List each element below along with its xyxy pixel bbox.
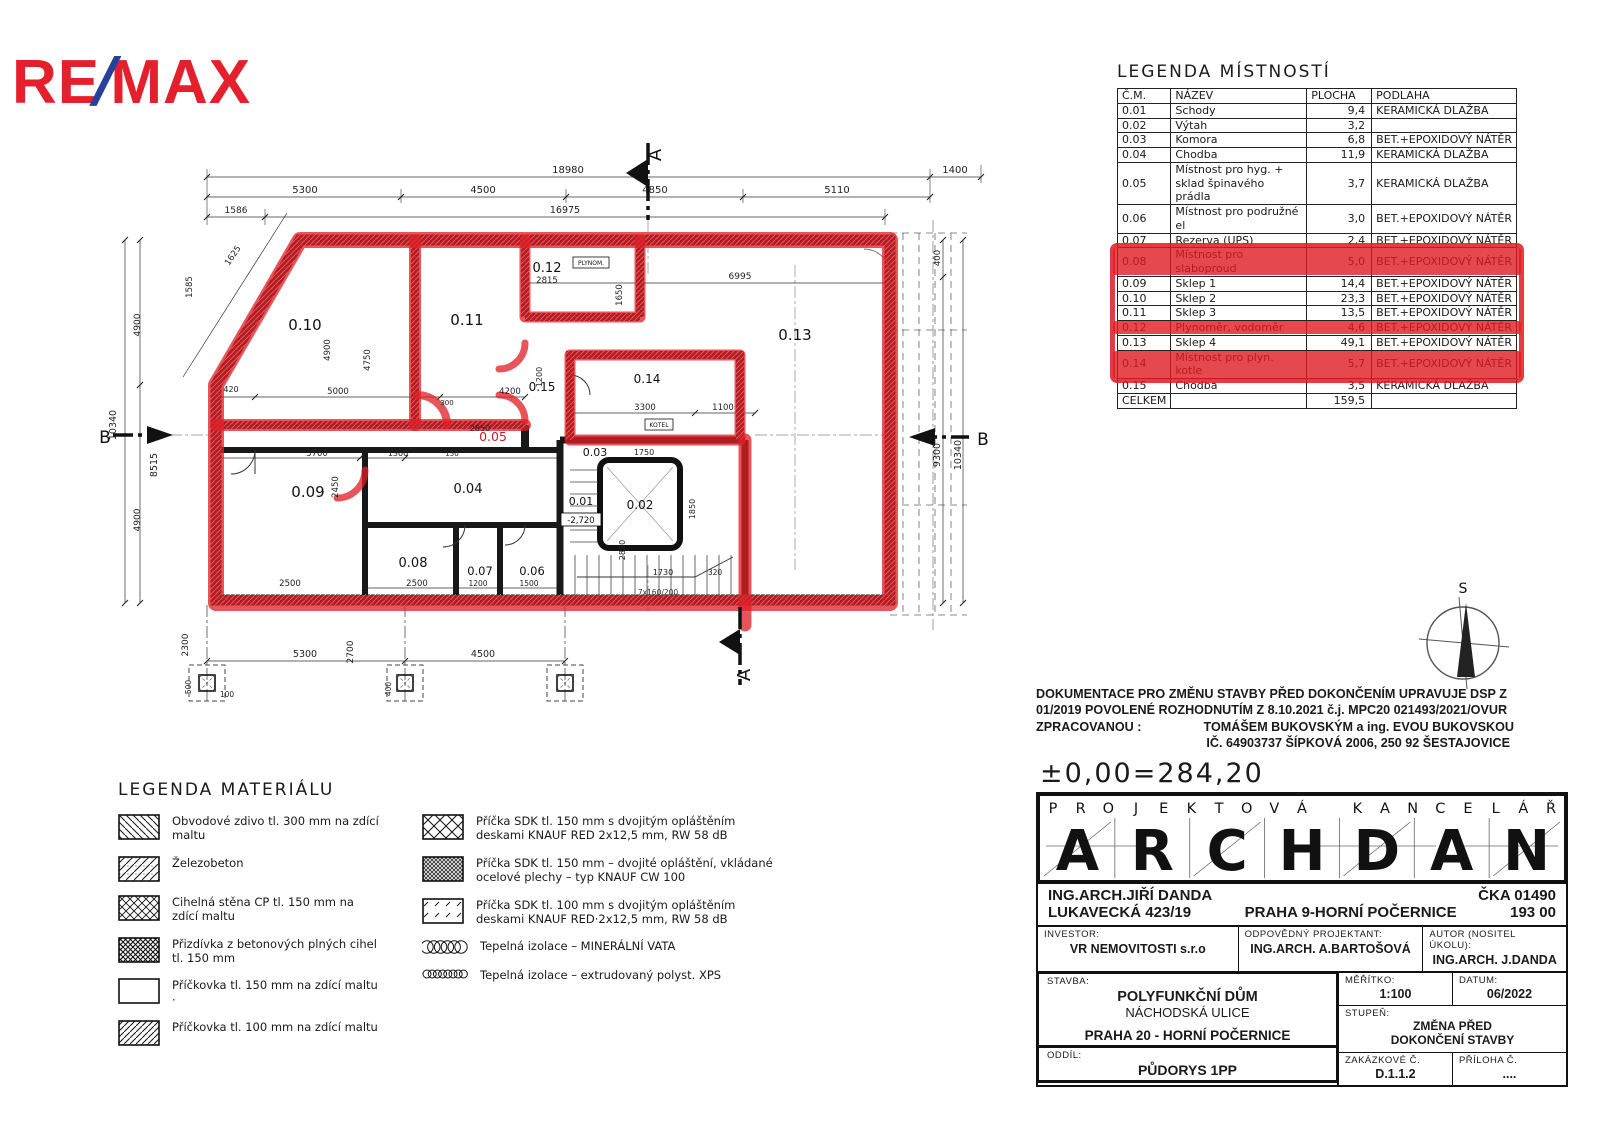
scale-cell: MĚŘÍTKO: 1:100 bbox=[1339, 973, 1453, 1005]
annex-value: .... bbox=[1459, 1067, 1560, 1081]
investor-cell: INVESTOR: VR NEMOVITOSTI s.r.o bbox=[1038, 927, 1239, 971]
material-legend-label: Obvodové zdivo tl. 300 mm na zdící maltu bbox=[172, 814, 380, 843]
title-block: PROJEKTOVÁKANCELÁŘARCHDAN ING.ARCH.JIŘÍ … bbox=[1036, 792, 1568, 1087]
stage-cell: STUPEŇ: ZMĚNA PŘED DOKONČENÍ STAVBY bbox=[1339, 1006, 1566, 1052]
project-name: POLYFUNKČNÍ DŮM bbox=[1047, 989, 1328, 1005]
date-value: 06/2022 bbox=[1459, 987, 1560, 1001]
column-header: Č.M. bbox=[1118, 89, 1171, 104]
material-legend-label: Přizdívka z betonových plných cihel tl. … bbox=[172, 937, 380, 966]
logo-small-letter: A bbox=[1380, 801, 1390, 817]
table-cell: Sklep 3 bbox=[1171, 306, 1307, 321]
remax-logo: RE/MAX bbox=[12, 52, 251, 114]
dimension-label: 1650 bbox=[615, 284, 625, 306]
logo-big-letter: A bbox=[1430, 819, 1474, 880]
logo-small-letter: O bbox=[1103, 801, 1114, 817]
insulation-swatch-icon bbox=[422, 968, 468, 980]
table-cell: BET.+EPOXIDOVÝ NÁTĚR bbox=[1372, 306, 1517, 321]
dimension-label: 4500 bbox=[470, 185, 495, 196]
material-swatch-icon bbox=[118, 856, 160, 882]
table-row: 0.15Chodba3,5KERAMICKÁ DLAŽBA bbox=[1118, 379, 1517, 394]
dimension-label: 2850 bbox=[618, 540, 627, 560]
dimension-label: 5000 bbox=[327, 387, 349, 397]
logo-big-letter: R bbox=[1131, 819, 1174, 880]
table-cell: Místnost pro plyn. kotle bbox=[1171, 350, 1307, 379]
remax-logo-max: MAX bbox=[110, 48, 251, 117]
room-number-label: 0.03 bbox=[583, 446, 608, 459]
logo-small-letter: L bbox=[1492, 801, 1500, 817]
dimension-label: 4750 bbox=[363, 349, 373, 371]
table-row: 0.09Sklep 114,4BET.+EPOXIDOVÝ NÁTĚR bbox=[1118, 276, 1517, 291]
material-legend-title: LEGENDA MATERIÁLU bbox=[118, 780, 998, 800]
room-legend-table: Č.M.NÁZEVPLOCHAPODLAHA0.01Schody9,4KERAM… bbox=[1117, 88, 1517, 409]
logo-big-letter: N bbox=[1503, 819, 1550, 880]
dimension-label: 18980 bbox=[552, 165, 584, 176]
material-legend-item: Příčka SDK tl. 150 mm s dvojitým opláště… bbox=[422, 814, 774, 843]
logo-small-letter: T bbox=[1214, 801, 1224, 817]
material-legend-label: Příčkovka tl. 100 mm na zdící maltu bbox=[172, 1020, 378, 1034]
table-cell: 0.12 bbox=[1118, 321, 1171, 336]
material-swatch-icon bbox=[118, 937, 160, 963]
dimension-label: 8515 bbox=[149, 453, 160, 477]
table-cell: 0.05 bbox=[1118, 162, 1171, 204]
table-cell: 0.06 bbox=[1118, 205, 1171, 234]
table-cell: 11,9 bbox=[1307, 148, 1372, 163]
dimension-label: 4200 bbox=[499, 387, 521, 397]
room-number-label: 0.08 bbox=[399, 556, 428, 571]
table-cell: 23,3 bbox=[1307, 291, 1372, 306]
logo-small-letter: Á bbox=[1297, 800, 1307, 817]
doc-note-line4: IČ. 64903737 ŠÍPKOVÁ 2006, 250 92 ŠESTAJ… bbox=[1036, 735, 1514, 751]
room-legend: LEGENDA MÍSTNOSTÍ Č.M.NÁZEVPLOCHAPODLAHA… bbox=[1117, 62, 1517, 409]
dimension-label: 1625 bbox=[223, 244, 243, 268]
table-cell: BET.+EPOXIDOVÝ NÁTĚR bbox=[1372, 291, 1517, 306]
stage-label: STUPEŇ: bbox=[1345, 1008, 1560, 1019]
dimension-label: 1400 bbox=[942, 165, 967, 176]
material-legend-item: Tepelná izolace – extrudovaný polyst. XP… bbox=[422, 968, 774, 982]
section-cell: ODDÍL: PŮDORYS 1PP bbox=[1039, 1045, 1336, 1084]
table-cell: BET.+EPOXIDOVÝ NÁTĚR bbox=[1372, 335, 1517, 350]
table-row: 0.10Sklep 223,3BET.+EPOXIDOVÝ NÁTĚR bbox=[1118, 291, 1517, 306]
room-number-label: 0.09 bbox=[291, 483, 324, 501]
table-cell: BET.+EPOXIDOVÝ NÁTĚR bbox=[1372, 233, 1517, 248]
date-label: DATUM: bbox=[1459, 975, 1560, 986]
column-header: PODLAHA bbox=[1372, 89, 1517, 104]
table-cell: 0.03 bbox=[1118, 133, 1171, 148]
table-cell: Místnost pro podružné el bbox=[1171, 205, 1307, 234]
logo-small-letter: C bbox=[1435, 801, 1445, 817]
table-cell: BET.+EPOXIDOVÝ NÁTĚR bbox=[1372, 321, 1517, 336]
gas-meter-label: PLYNOM. bbox=[578, 260, 604, 267]
level-mark: ±0,00=284,20 bbox=[1040, 758, 1264, 789]
author-value: ING.ARCH. J.DANDA bbox=[1429, 953, 1560, 967]
table-cell: KERAMICKÁ DLAŽBA bbox=[1372, 103, 1517, 118]
dimension-label: 2500 bbox=[279, 579, 301, 589]
stair-note-label: 7x160/200 bbox=[638, 588, 679, 597]
stair-core bbox=[570, 460, 733, 598]
dimension-label: 4850 bbox=[642, 185, 667, 196]
author-cell: AUTOR (NOSITEL ÚKOLU): ING.ARCH. J.DANDA bbox=[1423, 927, 1566, 971]
dimension-label: 4900 bbox=[323, 339, 333, 361]
parties-row: INVESTOR: VR NEMOVITOSTI s.r.o ODPOVĚDNÝ… bbox=[1036, 927, 1568, 973]
table-cell: 2,4 bbox=[1307, 233, 1372, 248]
logo-small-letter: E bbox=[1159, 801, 1168, 817]
section-b-label: B bbox=[977, 430, 989, 450]
table-row: 0.13Sklep 449,1BET.+EPOXIDOVÝ NÁTĚR bbox=[1118, 335, 1517, 350]
table-cell: 0.14 bbox=[1118, 350, 1171, 379]
material-swatch-icon bbox=[422, 814, 464, 840]
level-value-label: -2,720 bbox=[567, 516, 594, 526]
table-row: 0.07Rezerva (UPS)2,4BET.+EPOXIDOVÝ NÁTĚR bbox=[1118, 233, 1517, 248]
doc-note-line1: DOKUMENTACE PRO ZMĚNU STAVBY PŘED DOKONČ… bbox=[1036, 686, 1514, 702]
designer-value: ING.ARCH. A.BARTOŠOVÁ bbox=[1245, 942, 1417, 956]
table-cell: 0.08 bbox=[1118, 248, 1171, 277]
room-number-label: 0.11 bbox=[450, 311, 483, 329]
table-cell: Sklep 4 bbox=[1171, 335, 1307, 350]
material-swatch-icon bbox=[422, 856, 464, 882]
table-cell: 0.11 bbox=[1118, 306, 1171, 321]
room-number-label: 0.07 bbox=[467, 564, 493, 578]
dimension-label: 5300 bbox=[293, 649, 317, 660]
material-legend-label: Příčka SDK tl. 100 mm s dvojitým opláště… bbox=[476, 898, 774, 927]
logo-big-letter: D bbox=[1354, 819, 1400, 880]
dimension-label: 1200 bbox=[535, 367, 544, 387]
logo-big-letter: H bbox=[1279, 819, 1326, 880]
material-legend-item: Příčka SDK tl. 150 mm – dvojité opláštěn… bbox=[422, 856, 774, 885]
dimension-label: 1850 bbox=[688, 499, 697, 519]
table-cell: 159,5 bbox=[1307, 393, 1372, 408]
dimension-label: 1750 bbox=[634, 448, 654, 457]
material-swatch-icon bbox=[118, 978, 160, 1004]
room-number-label: 0.02 bbox=[627, 498, 654, 512]
section-a-label: A bbox=[645, 148, 666, 161]
doc-note-line2: 01/2019 POVOLENÉ ROZHODNUTÍM Z 8.10.2021… bbox=[1036, 702, 1514, 718]
extension-dashed-lines bbox=[890, 220, 967, 630]
dimension-label: 100 bbox=[220, 690, 235, 699]
dimension-label: 400 bbox=[384, 682, 393, 697]
dimension-label: 6995 bbox=[729, 272, 752, 282]
table-cell: KERAMICKÁ DLAŽBA bbox=[1372, 148, 1517, 163]
investor-label: INVESTOR: bbox=[1044, 929, 1232, 940]
project-city: PRAHA 20 - HORNÍ POČERNICE bbox=[1047, 1028, 1328, 1043]
table-cell: 0.10 bbox=[1118, 291, 1171, 306]
table-cell: 5,7 bbox=[1307, 350, 1372, 379]
table-cell: 0.04 bbox=[1118, 148, 1171, 163]
drawing-sheet: RE/MAX LEGENDA MÍSTNOSTÍ Č.M.NÁZEVPLOCHA… bbox=[0, 0, 1600, 1131]
architect-city: PRAHA 9-HORNÍ POČERNICE bbox=[1245, 904, 1457, 921]
room-number-label: 0.01 bbox=[569, 495, 594, 508]
table-cell: Místnost pro slaboproud bbox=[1171, 248, 1307, 277]
table-row: 0.11Sklep 313,5BET.+EPOXIDOVÝ NÁTĚR bbox=[1118, 306, 1517, 321]
architect-info: ING.ARCH.JIŘÍ DANDA ČKA 01490 LUKAVECKÁ … bbox=[1036, 884, 1568, 927]
table-cell: 5,0 bbox=[1307, 248, 1372, 277]
compass-north-label: S bbox=[1459, 581, 1468, 597]
dimension-label: 2300 bbox=[181, 633, 191, 656]
table-cell: BET.+EPOXIDOVÝ NÁTĚR bbox=[1372, 248, 1517, 277]
boiler-label: KOTEL bbox=[649, 422, 669, 429]
table-cell: CELKEM bbox=[1118, 393, 1171, 408]
material-legend-item: Obvodové zdivo tl. 300 mm na zdící maltu bbox=[118, 814, 380, 843]
title-block-meta: MĚŘÍTKO: 1:100 DATUM: 06/2022 STUPEŇ: ZM… bbox=[1339, 973, 1566, 1085]
logo-small-letter: P bbox=[1049, 801, 1058, 817]
material-swatch-icon bbox=[118, 895, 160, 921]
material-legend-left-column: Obvodové zdivo tl. 300 mm na zdící maltu… bbox=[118, 814, 380, 1046]
table-header-row: Č.M.NÁZEVPLOCHAPODLAHA bbox=[1118, 89, 1517, 104]
dimension-label: 300 bbox=[440, 399, 453, 407]
logo-big-letter: C bbox=[1207, 819, 1248, 880]
table-cell: 49,1 bbox=[1307, 335, 1372, 350]
room-number-label: 0.13 bbox=[778, 326, 811, 344]
dimension-label: 2450 bbox=[331, 476, 341, 498]
logo-small-letter: E bbox=[1463, 801, 1472, 817]
dimension-label: 2500 bbox=[406, 579, 428, 589]
order-label: ZAKÁZKOVÉ Č. bbox=[1345, 1055, 1446, 1066]
dimension-label: 2850 bbox=[470, 424, 490, 433]
column-header: PLOCHA bbox=[1307, 89, 1372, 104]
doc-note-line3-label: ZPRACOVANOU : bbox=[1036, 719, 1141, 735]
architect-street: LUKAVECKÁ 423/19 bbox=[1048, 904, 1191, 921]
logo-small-letter: N bbox=[1407, 801, 1418, 817]
table-row: 0.06Místnost pro podružné el3,0BET.+EPOX… bbox=[1118, 205, 1517, 234]
table-cell bbox=[1372, 393, 1517, 408]
annex-cell: PŘÍLOHA Č. .... bbox=[1453, 1053, 1566, 1085]
table-cell: 4,6 bbox=[1307, 321, 1372, 336]
room-number-label: 0.14 bbox=[634, 372, 661, 386]
remax-logo-re: RE bbox=[12, 48, 100, 117]
column-header: NÁZEV bbox=[1171, 89, 1307, 104]
dimension-label: 4900 bbox=[133, 313, 143, 336]
table-cell: BET.+EPOXIDOVÝ NÁTĚR bbox=[1372, 205, 1517, 234]
table-row: 0.02Výtah3,2 bbox=[1118, 118, 1517, 133]
dimension-label: 400 bbox=[933, 250, 943, 266]
architect-cka: ČKA 01490 bbox=[1478, 887, 1556, 904]
table-row: 0.05Místnost pro hyg. + sklad špinavého … bbox=[1118, 162, 1517, 204]
table-row: 0.12Plynoměr, vodoměr4,6BET.+EPOXIDOVÝ N… bbox=[1118, 321, 1517, 336]
material-legend-label: Příčka SDK tl. 150 mm s dvojitým opláště… bbox=[476, 814, 774, 843]
investor-value: VR NEMOVITOSTI s.r.o bbox=[1044, 942, 1232, 956]
table-cell: 0.07 bbox=[1118, 233, 1171, 248]
dimension-label: 1200 bbox=[468, 579, 487, 588]
order-value: D.1.1.2 bbox=[1345, 1067, 1446, 1081]
material-legend-label: Železobeton bbox=[172, 856, 244, 870]
dimension-label: 1730 bbox=[653, 568, 673, 577]
material-legend-item: Tepelná izolace – MINERÁLNÍ VATA bbox=[422, 939, 774, 955]
walls-red-marker bbox=[216, 240, 890, 625]
table-cell: 3,5 bbox=[1307, 379, 1372, 394]
table-cell: 0.01 bbox=[1118, 103, 1171, 118]
annex-label: PŘÍLOHA Č. bbox=[1459, 1055, 1560, 1066]
material-legend-right-column: Příčka SDK tl. 150 mm s dvojitým opláště… bbox=[422, 814, 774, 983]
logo-small-letter: V bbox=[1269, 801, 1279, 817]
table-cell: KERAMICKÁ DLAŽBA bbox=[1372, 379, 1517, 394]
table-cell: 0.02 bbox=[1118, 118, 1171, 133]
table-cell: BET.+EPOXIDOVÝ NÁTĚR bbox=[1372, 133, 1517, 148]
logo-small-letter: K bbox=[1187, 801, 1197, 817]
dimension-label: 2700 bbox=[346, 640, 356, 663]
dimension-label: 4500 bbox=[471, 649, 495, 660]
scale-label: MĚŘÍTKO: bbox=[1345, 975, 1446, 986]
logo-small-letter: O bbox=[1241, 801, 1252, 817]
table-cell bbox=[1372, 118, 1517, 133]
scale-value: 1:100 bbox=[1345, 987, 1446, 1001]
table-row: 0.01Schody9,4KERAMICKÁ DLAŽBA bbox=[1118, 103, 1517, 118]
table-cell: KERAMICKÁ DLAŽBA bbox=[1372, 162, 1517, 204]
table-cell: 14,4 bbox=[1307, 276, 1372, 291]
room-number-label: 0.12 bbox=[533, 261, 562, 276]
table-cell: 0.15 bbox=[1118, 379, 1171, 394]
table-cell: Sklep 2 bbox=[1171, 291, 1307, 306]
material-legend-item: Železobeton bbox=[118, 856, 380, 882]
order-cell: ZAKÁZKOVÉ Č. D.1.1.2 bbox=[1339, 1053, 1453, 1085]
dimension-label: 9300 bbox=[932, 443, 943, 467]
stage-value-line1: ZMĚNA PŘED bbox=[1345, 1020, 1560, 1034]
designer-label: ODPOVĚDNÝ PROJEKTANT: bbox=[1245, 929, 1417, 940]
documentation-note: DOKUMENTACE PRO ZMĚNU STAVBY PŘED DOKONČ… bbox=[1036, 686, 1514, 751]
room-legend-title: LEGENDA MÍSTNOSTÍ bbox=[1117, 62, 1517, 82]
dimension-label: 2815 bbox=[536, 276, 558, 286]
table-cell bbox=[1171, 393, 1307, 408]
architect-name: ING.ARCH.JIŘÍ DANDA bbox=[1048, 887, 1212, 904]
logo-small-letter: Ř bbox=[1546, 800, 1556, 817]
dimension-label: 16975 bbox=[550, 205, 580, 216]
table-cell: Plynoměr, vodoměr bbox=[1171, 321, 1307, 336]
room-number-label: 0.06 bbox=[519, 564, 545, 578]
table-cell: Schody bbox=[1171, 103, 1307, 118]
dimension-label: 10340 bbox=[953, 440, 964, 470]
dimension-label: 1586 bbox=[225, 206, 248, 216]
dimension-label: 3700 bbox=[306, 449, 328, 459]
insulation-swatch-icon bbox=[422, 939, 468, 955]
room-number-label: 0.04 bbox=[454, 482, 483, 497]
table-cell: Sklep 1 bbox=[1171, 276, 1307, 291]
table-row: 0.08Místnost pro slaboproud5,0BET.+EPOXI… bbox=[1118, 248, 1517, 277]
logo-small-letter: K bbox=[1353, 801, 1363, 817]
project-street: NÁCHODSKÁ ULICE bbox=[1047, 1005, 1328, 1020]
compass-rose: S bbox=[1405, 575, 1521, 695]
material-swatch-icon bbox=[422, 898, 464, 924]
material-legend-item: Přizdívka z betonových plných cihel tl. … bbox=[118, 937, 380, 966]
architect-zip: 193 00 bbox=[1510, 904, 1556, 921]
section-label: ODDÍL: bbox=[1047, 1050, 1328, 1061]
table-cell: BET.+EPOXIDOVÝ NÁTĚR bbox=[1372, 276, 1517, 291]
dimension-label: 3300 bbox=[634, 403, 656, 413]
material-legend-label: Příčka SDK tl. 150 mm – dvojité opláštěn… bbox=[476, 856, 774, 885]
dimension-label: 5110 bbox=[824, 185, 849, 196]
dimension-label: 5300 bbox=[292, 185, 317, 196]
project-label: STAVBA: bbox=[1047, 976, 1328, 987]
material-legend-label: Tepelná izolace – extrudovaný polyst. XP… bbox=[480, 968, 721, 982]
table-cell: 0.13 bbox=[1118, 335, 1171, 350]
archdan-logo: PROJEKTOVÁKANCELÁŘARCHDAN bbox=[1036, 792, 1568, 884]
logo-small-letter: Á bbox=[1518, 800, 1528, 817]
table-cell: 3,0 bbox=[1307, 205, 1372, 234]
table-cell: 6,8 bbox=[1307, 133, 1372, 148]
table-cell: Chodba bbox=[1171, 148, 1307, 163]
table-cell: Místnost pro hyg. + sklad špinavého prád… bbox=[1171, 162, 1307, 204]
material-legend: LEGENDA MATERIÁLU Obvodové zdivo tl. 300… bbox=[118, 780, 998, 1046]
logo-small-letter: J bbox=[1133, 801, 1138, 817]
material-legend-label: Cihelná stěna CP tl. 150 mm na zdící mal… bbox=[172, 895, 380, 924]
table-total-row: CELKEM159,5 bbox=[1118, 393, 1517, 408]
material-swatch-icon bbox=[118, 1020, 160, 1046]
dimension-label: 420 bbox=[223, 385, 238, 394]
drawing-title: PŮDORYS 1PP bbox=[1047, 1062, 1328, 1078]
table-cell: 0.09 bbox=[1118, 276, 1171, 291]
material-legend-item: Příčkovka tl. 100 mm na zdící maltu bbox=[118, 1020, 380, 1046]
dimension-label: 320 bbox=[708, 568, 723, 577]
date-cell: DATUM: 06/2022 bbox=[1453, 973, 1566, 1005]
dimension-label: 150 bbox=[445, 450, 458, 458]
designer-cell: ODPOVĚDNÝ PROJEKTANT: ING.ARCH. A.BARTOŠ… bbox=[1239, 927, 1424, 971]
dimension-label: 1500 bbox=[519, 579, 538, 588]
table-cell: 3,7 bbox=[1307, 162, 1372, 204]
floor-plan: 0.100.110.120.130.140.150.050.090.040.08… bbox=[95, 125, 1045, 805]
material-legend-item: Cihelná stěna CP tl. 150 mm na zdící mal… bbox=[118, 895, 380, 924]
table-cell: Chodba bbox=[1171, 379, 1307, 394]
table-cell: Rezerva (UPS) bbox=[1171, 233, 1307, 248]
table-row: 0.03Komora6,8BET.+EPOXIDOVÝ NÁTĚR bbox=[1118, 133, 1517, 148]
logo-small-letter: R bbox=[1076, 801, 1086, 817]
room-number-label: 0.10 bbox=[288, 316, 321, 334]
material-legend-item: Příčkovka tl. 150 mm na zdící maltu · bbox=[118, 978, 380, 1007]
material-legend-label: Tepelná izolace – MINERÁLNÍ VATA bbox=[480, 939, 675, 953]
table-row: 0.14Místnost pro plyn. kotle5,7BET.+EPOX… bbox=[1118, 350, 1517, 379]
table-cell: Komora bbox=[1171, 133, 1307, 148]
dimension-label: 4900 bbox=[133, 508, 143, 531]
material-legend-label: Příčkovka tl. 150 mm na zdící maltu · bbox=[172, 978, 380, 1007]
section-b-label: B bbox=[99, 428, 111, 448]
compass-needle bbox=[1457, 603, 1475, 677]
table-cell: 3,2 bbox=[1307, 118, 1372, 133]
doc-note-line3-text: TOMÁŠEM BUKOVSKÝM a ing. EVOU BUKOVSKOU bbox=[1204, 719, 1514, 735]
title-block-bottom: STAVBA: POLYFUNKČNÍ DŮM NÁCHODSKÁ ULICE … bbox=[1036, 973, 1568, 1087]
material-legend-item: Příčka SDK tl. 100 mm s dvojitým opláště… bbox=[422, 898, 774, 927]
table-cell: 9,4 bbox=[1307, 103, 1372, 118]
dimension-label: 1100 bbox=[712, 403, 734, 413]
stage-value-line2: DOKONČENÍ STAVBY bbox=[1345, 1034, 1560, 1048]
material-swatch-icon bbox=[118, 814, 160, 840]
table-row: 0.04Chodba11,9KERAMICKÁ DLAŽBA bbox=[1118, 148, 1517, 163]
dimension-label: 1300 bbox=[388, 449, 408, 458]
table-cell: Výtah bbox=[1171, 118, 1307, 133]
table-cell: BET.+EPOXIDOVÝ NÁTĚR bbox=[1372, 350, 1517, 379]
table-cell: 13,5 bbox=[1307, 306, 1372, 321]
section-a-label: A bbox=[734, 668, 755, 681]
logo-big-letter: A bbox=[1056, 819, 1100, 880]
author-label: AUTOR (NOSITEL ÚKOLU): bbox=[1429, 929, 1560, 951]
dimension-label: 1585 bbox=[185, 276, 195, 298]
project-cell: STAVBA: POLYFUNKČNÍ DŮM NÁCHODSKÁ ULICE … bbox=[1038, 973, 1339, 1085]
